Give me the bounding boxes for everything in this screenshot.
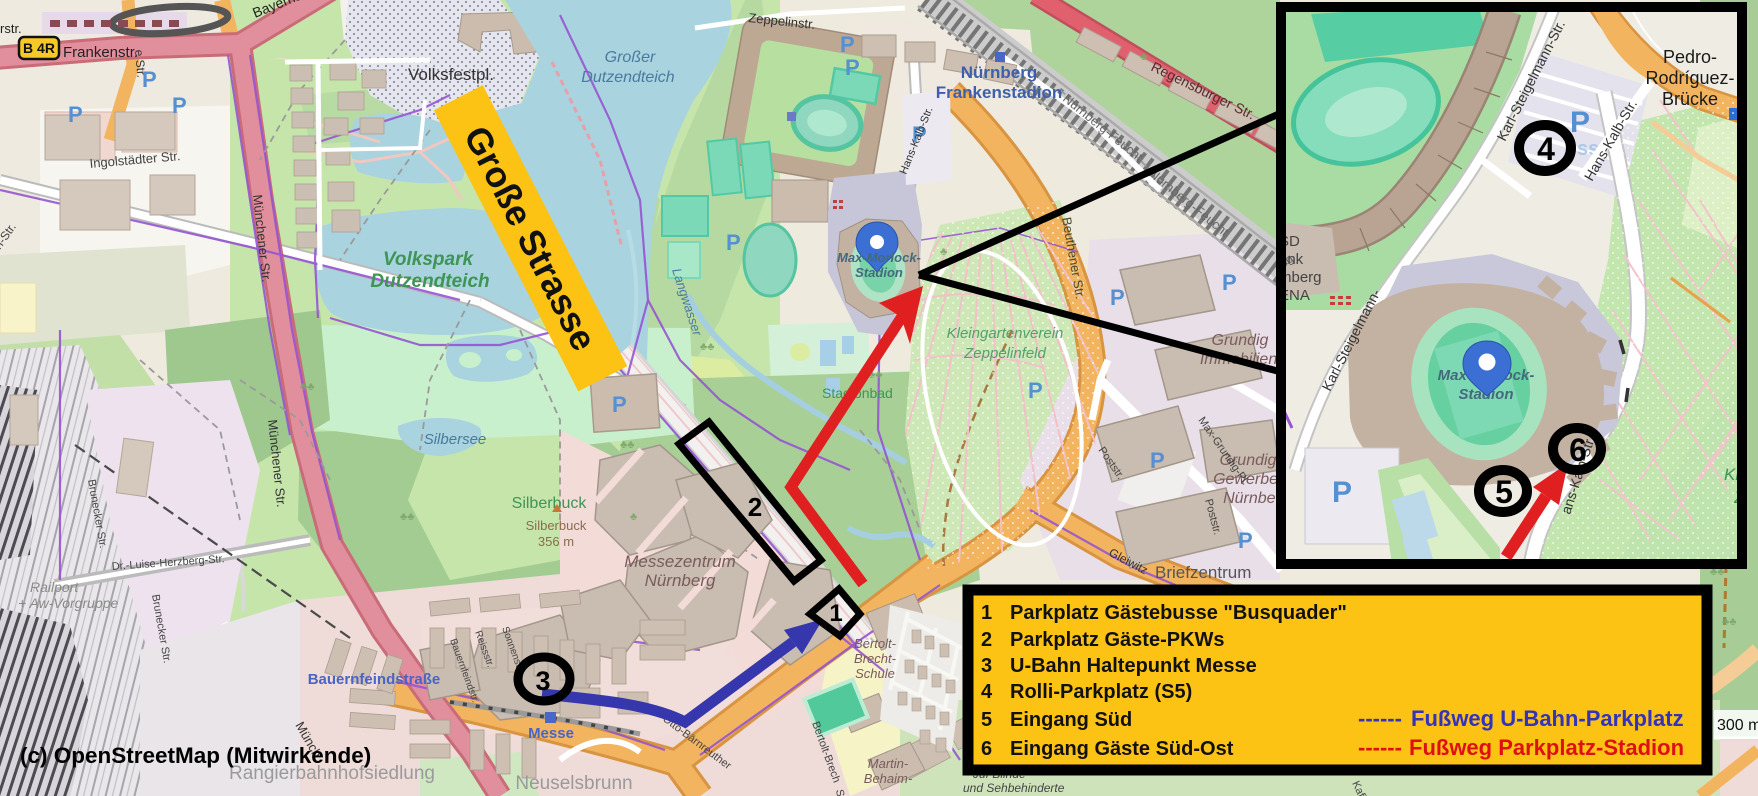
svg-text:P: P xyxy=(1570,106,1590,139)
svg-text:6: 6 xyxy=(981,738,992,760)
svg-text:Volksfestpl.: Volksfestpl. xyxy=(408,65,494,84)
svg-text:Frankenstr.: Frankenstr. xyxy=(63,44,138,61)
svg-text:+ Aw-Vorgruppe: + Aw-Vorgruppe xyxy=(18,595,118,611)
svg-text:Volkspark: Volkspark xyxy=(383,249,475,270)
svg-text:P: P xyxy=(1110,285,1125,310)
svg-text:Eingang Süd: Eingang Süd xyxy=(1010,709,1132,731)
svg-text:Brücke: Brücke xyxy=(1662,89,1718,109)
svg-text:Kleingartenverein: Kleingartenverein xyxy=(947,325,1064,342)
svg-text:Frankenstadion: Frankenstadion xyxy=(936,83,1063,102)
svg-text:P: P xyxy=(612,392,627,417)
svg-text:P: P xyxy=(840,32,855,57)
svg-text:rstr.: rstr. xyxy=(0,21,22,36)
svg-text:Parkplatz Gästebusse "Busquade: Parkplatz Gästebusse "Busquader" xyxy=(1010,602,1347,624)
svg-text:Parkplatz Gäste-PKWs: Parkplatz Gäste-PKWs xyxy=(1010,629,1225,651)
svg-text:2: 2 xyxy=(981,629,992,651)
svg-text:Neuselsbrunn: Neuselsbrunn xyxy=(515,773,632,794)
svg-text:4: 4 xyxy=(981,681,993,703)
svg-text:♣: ♣ xyxy=(940,246,947,258)
svg-text:Schule: Schule xyxy=(855,666,895,681)
svg-text:Nürnberg: Nürnberg xyxy=(961,63,1038,82)
svg-text:Nürnberg: Nürnberg xyxy=(645,571,716,590)
svg-text:4: 4 xyxy=(1537,131,1555,167)
svg-text:P: P xyxy=(1332,476,1352,509)
svg-text:♣♣: ♣♣ xyxy=(700,341,714,353)
svg-text:Bertolt-: Bertolt- xyxy=(854,636,897,651)
svg-text:Silbersee: Silbersee xyxy=(424,431,487,448)
svg-text:P: P xyxy=(172,93,187,118)
svg-text:Martin-: Martin- xyxy=(868,756,909,771)
svg-text:Silberbuck: Silberbuck xyxy=(512,495,588,512)
svg-text:B 4R: B 4R xyxy=(23,40,55,56)
svg-text:1: 1 xyxy=(829,600,842,627)
svg-text:2: 2 xyxy=(748,492,762,522)
svg-text:♣♣: ♣♣ xyxy=(400,511,414,523)
svg-text:Dutzendteich: Dutzendteich xyxy=(370,271,489,292)
svg-text:P: P xyxy=(68,102,83,127)
svg-text:Großer: Großer xyxy=(605,49,656,66)
svg-text:und Sehbehinderte: und Sehbehinderte xyxy=(963,781,1065,795)
svg-text:------: ------ xyxy=(1358,706,1402,731)
svg-text:Dutzendteich: Dutzendteich xyxy=(581,69,674,86)
svg-text:(c) OpenStreetMap (Mitwirkende: (c) OpenStreetMap (Mitwirkende) xyxy=(20,743,371,768)
svg-text:Messe: Messe xyxy=(528,725,574,742)
svg-text:5: 5 xyxy=(1495,474,1513,510)
svg-text:♣♣: ♣♣ xyxy=(620,439,634,451)
svg-text:♣♣: ♣♣ xyxy=(1722,616,1736,628)
svg-text:Str: Str xyxy=(833,788,847,796)
svg-text:♣: ♣ xyxy=(1140,51,1147,63)
svg-text:Stadion: Stadion xyxy=(855,265,903,280)
svg-text:Max-Morlock-: Max-Morlock- xyxy=(837,250,921,265)
svg-text:Silberbuck: Silberbuck xyxy=(526,518,587,533)
svg-text:Messezentrum: Messezentrum xyxy=(624,552,735,571)
svg-text:Rolli-Parkplatz (S5): Rolli-Parkplatz (S5) xyxy=(1010,681,1192,703)
svg-text:300 m: 300 m xyxy=(1717,717,1758,734)
svg-text:Bauernfeindstraße: Bauernfeindstraße xyxy=(308,671,441,688)
svg-text:e Str.: e Str. xyxy=(132,49,148,78)
svg-text:Fußweg U-Bahn-Parkplatz: Fußweg U-Bahn-Parkplatz xyxy=(1411,706,1684,731)
svg-text:5: 5 xyxy=(981,709,992,731)
svg-text:------: ------ xyxy=(1358,735,1402,760)
svg-text:P: P xyxy=(1222,270,1237,295)
svg-text:P: P xyxy=(845,55,860,80)
svg-text:Brecht-: Brecht- xyxy=(854,651,897,666)
svg-text:Nürnber: Nürnber xyxy=(1223,490,1281,507)
svg-text:P: P xyxy=(726,230,741,255)
svg-text:6: 6 xyxy=(1569,432,1587,468)
svg-text:1: 1 xyxy=(981,602,992,624)
svg-text:3: 3 xyxy=(535,666,550,696)
svg-text:P: P xyxy=(1028,378,1043,403)
svg-text:P: P xyxy=(1238,528,1253,553)
svg-text:356 m: 356 m xyxy=(538,534,574,549)
svg-text:Railport: Railport xyxy=(30,579,79,595)
svg-text:3: 3 xyxy=(981,655,992,677)
svg-text:Briefzentrum: Briefzentrum xyxy=(1155,563,1251,582)
svg-text:Rodríguez-: Rodríguez- xyxy=(1645,68,1734,88)
svg-text:Behaim-: Behaim- xyxy=(864,771,913,786)
svg-text:Grundig: Grundig xyxy=(1212,332,1269,349)
svg-text:U-Bahn Haltepunkt Messe: U-Bahn Haltepunkt Messe xyxy=(1010,655,1257,677)
svg-text:♣: ♣ xyxy=(630,511,637,523)
svg-text:Fußweg Parkplatz-Stadion: Fußweg Parkplatz-Stadion xyxy=(1409,735,1684,760)
svg-text:♣♣: ♣♣ xyxy=(300,381,314,393)
svg-text:Zeppelinfeld: Zeppelinfeld xyxy=(963,345,1046,362)
svg-text:Pedro-: Pedro- xyxy=(1663,47,1717,67)
svg-text:Eingang Gäste Süd-Ost: Eingang Gäste Süd-Ost xyxy=(1010,738,1234,760)
svg-text:P: P xyxy=(1150,448,1165,473)
